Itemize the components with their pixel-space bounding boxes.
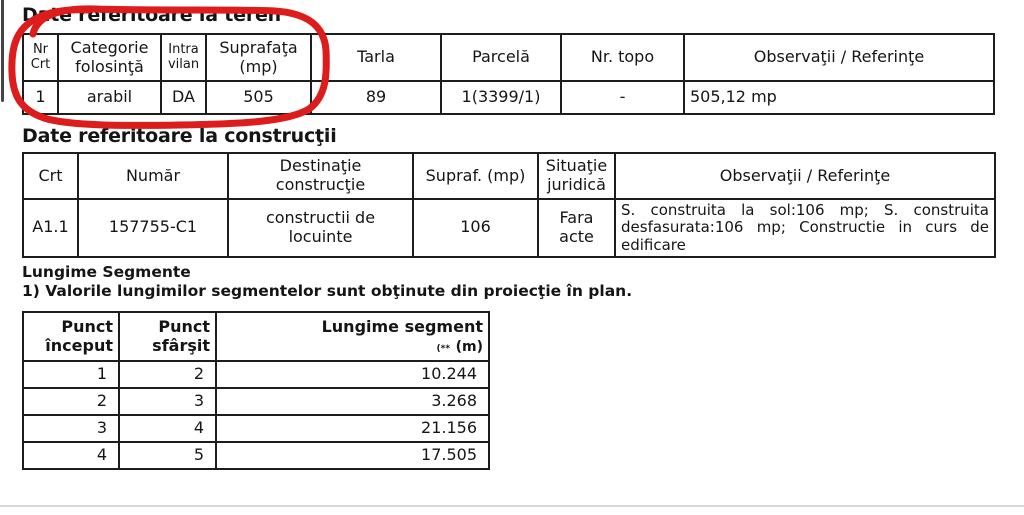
col-header-nr-topo: Nr. topo [561,34,684,81]
constructii-cell-crt: A1.1 [23,199,78,257]
col-header-observatii: Observaţii / Referinţe [684,34,994,81]
segment-cell-end: 4 [119,415,216,442]
cadastral-document-page: Date referitoare la teren Nr Crt Categor… [0,0,1024,515]
table-row: 2 3 3.268 [23,388,489,415]
table-row: A1.1 157755-C1 constructii de locuinte 1… [23,199,995,257]
scan-edge-artifact [1,0,4,102]
teren-header-row: Nr Crt Categorie folosinţă Intra vilan S… [23,34,994,81]
table-row: 1 arabil DA 505 89 1(3399/1) - 505,12 mp [23,81,994,114]
segment-cell-start: 4 [23,442,119,469]
constructii-cell-numar: 157755-C1 [78,199,228,257]
teren-cell-parcela: 1(3399/1) [441,81,561,114]
col-header-suprafata: Suprafaţa (mp) [206,34,311,81]
teren-table: Nr Crt Categorie folosinţă Intra vilan S… [22,33,995,115]
lungime-unit-line: (** (m) [221,337,483,356]
col-header-punct-inceput: Punct început [23,312,119,361]
teren-cell-suprafata: 505 [206,81,311,114]
segment-cell-length: 10.244 [216,361,489,388]
table-row: 1 2 10.244 [23,361,489,388]
col-header-lungime-segment: Lungime segment(** (m) [216,312,489,361]
constructii-cell-observatii: S. construita la sol:106 mp; S. construi… [615,199,995,257]
segment-cell-start: 2 [23,388,119,415]
constructii-table: Crt Număr Destinaţie construcţie Supraf.… [22,152,996,258]
col-header-observatii-constructii: Observaţii / Referinţe [615,153,995,199]
table-row: 4 5 17.505 [23,442,489,469]
unit-label: (m) [456,339,483,355]
section-title-teren: Date referitoare la teren [22,5,281,27]
col-header-crt: Crt [23,153,78,199]
col-header-destinatie: Destinaţie construcţie [228,153,413,199]
teren-cell-categorie: arabil [58,81,161,114]
segmente-table: Punct început Punct sfârşit Lungime segm… [22,311,490,470]
segment-cell-start: 1 [23,361,119,388]
section-title-segmente: Lungime Segmente [22,263,191,282]
segment-cell-length: 17.505 [216,442,489,469]
col-header-parcela: Parcelă [441,34,561,81]
lungime-label: Lungime segment [322,317,483,336]
segment-cell-start: 3 [23,415,119,442]
col-header-situatie: Situaţie juridică [538,153,615,199]
constructii-cell-situatie: Fara acte [538,199,615,257]
col-header-punct-sfarsit: Punct sfârşit [119,312,216,361]
table-row: 3 4 21.156 [23,415,489,442]
teren-cell-observatii: 505,12 mp [684,81,994,114]
segment-cell-end: 3 [119,388,216,415]
teren-cell-tarla: 89 [311,81,441,114]
col-header-categorie: Categorie folosinţă [58,34,161,81]
segment-cell-end: 2 [119,361,216,388]
col-header-supraf: Supraf. (mp) [413,153,538,199]
segment-cell-end: 5 [119,442,216,469]
col-header-nr-crt: Nr Crt [23,34,58,81]
bottom-separator-line [0,505,1024,507]
constructii-header-row: Crt Număr Destinaţie construcţie Supraf.… [23,153,995,199]
segmente-header-row: Punct început Punct sfârşit Lungime segm… [23,312,489,361]
segment-cell-length: 3.268 [216,388,489,415]
section-title-constructii: Date referitoare la construcţii [22,126,337,148]
teren-cell-nr-topo: - [561,81,684,114]
constructii-cell-destinatie: constructii de locuinte [228,199,413,257]
col-header-numar: Număr [78,153,228,199]
segmente-footnote: 1) Valorile lungimilor segmentelor sunt … [22,282,632,301]
teren-cell-intravilan: DA [161,81,206,114]
footnote-marker: (** [437,344,451,354]
col-header-tarla: Tarla [311,34,441,81]
teren-cell-nr: 1 [23,81,58,114]
col-header-intravilan: Intra vilan [161,34,206,81]
segment-cell-length: 21.156 [216,415,489,442]
constructii-cell-supraf: 106 [413,199,538,257]
